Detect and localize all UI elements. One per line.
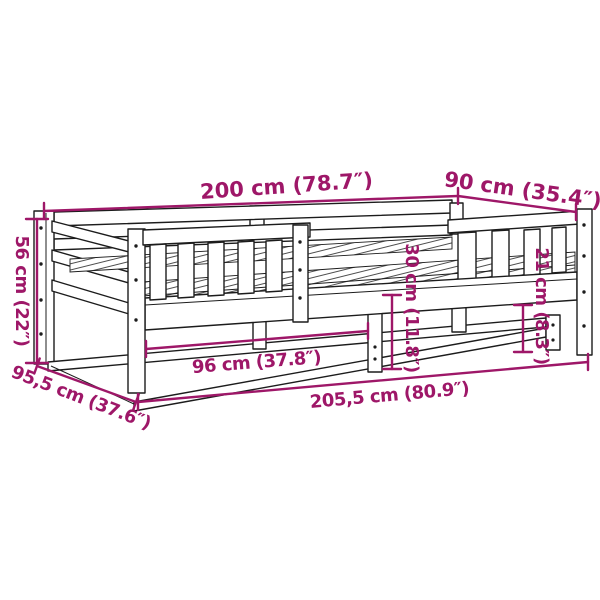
dim-label-clearance-height: 30 cm (11.8″) — [401, 243, 422, 372]
dim-label-rail-height: 21 cm (8.3″) — [531, 247, 552, 364]
head-end — [34, 211, 129, 364]
product-dimension-diagram: 200 cm (78.7″) 90 cm (35.4″) 56 cm (22″)… — [0, 0, 600, 600]
bed-frame-dimension-drawing: 200 cm (78.7″) 90 cm (35.4″) 56 cm (22″)… — [0, 0, 600, 600]
dim-label-left-height: 56 cm (22″) — [11, 235, 32, 346]
dim-label-top-width: 90 cm (35.4″) — [443, 167, 600, 213]
front-left-post — [128, 229, 145, 393]
dim-label-overall-length: 205,5 cm (80.9″) — [309, 378, 470, 413]
front-right-post — [577, 209, 592, 355]
bed-frame-line-art — [34, 200, 592, 411]
dimension-top-width: 90 cm (35.4″) — [443, 167, 600, 220]
dim-label-top-length: 200 cm (78.7″) — [199, 168, 373, 204]
